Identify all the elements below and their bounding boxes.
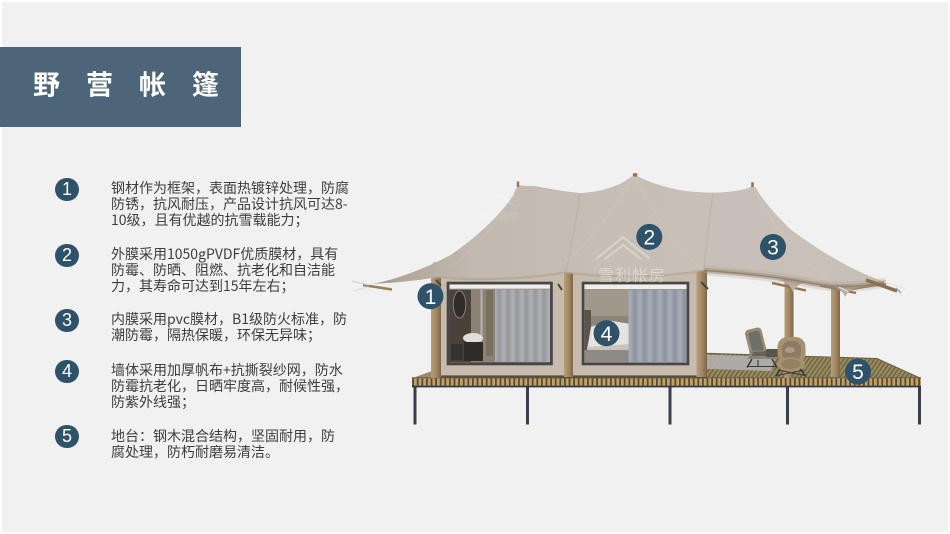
svg-text:5: 5: [852, 361, 864, 384]
svg-text:雪利帐房: 雪利帐房: [598, 262, 666, 286]
svg-text:4: 4: [601, 323, 613, 346]
svg-text:3: 3: [767, 237, 779, 260]
svg-text:1: 1: [425, 286, 437, 309]
svg-text:2: 2: [643, 227, 655, 250]
svg-text:雪利帐房: 雪利帐房: [479, 208, 519, 223]
